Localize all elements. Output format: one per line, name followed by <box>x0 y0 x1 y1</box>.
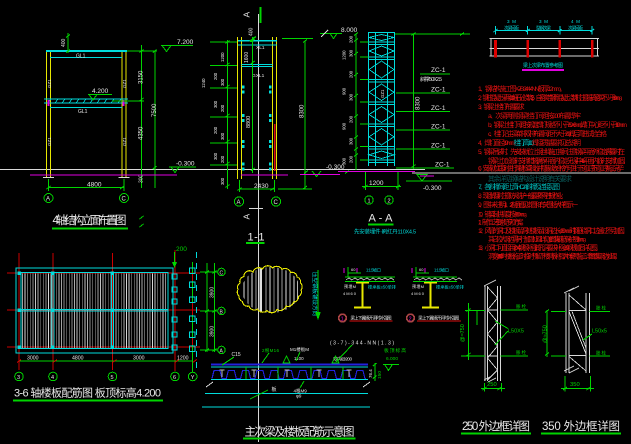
svg-text:300: 300 <box>349 137 354 145</box>
svg-text:200: 200 <box>220 104 225 112</box>
svg-text:4800: 4800 <box>87 182 102 189</box>
svg-text:7500: 7500 <box>152 103 158 117</box>
svg-text:GZ1: GZ1 <box>122 137 127 146</box>
svg-text:ZC-1: ZC-1 <box>431 143 446 150</box>
svg-text:4800: 4800 <box>72 356 84 362</box>
svg-text:8800: 8800 <box>246 116 252 128</box>
svg-text:9、图中未注明1-1、2-2剖面图,见本图和有关图纸大样图示: 9、图中未注明1-1、2-2剖面图,见本图和有关图纸大样图示一 <box>478 200 578 209</box>
svg-text:1、钢结构施工图X-7B-344-4NN,板厚12mm。: 1、钢结构施工图X-7B-344-4NN,板厚12mm。 <box>478 84 566 93</box>
svg-text:预埋M: 预埋M <box>344 283 356 289</box>
svg-text:2430: 2430 <box>254 183 269 190</box>
svg-text:350 外边框详图: 350 外边框详图 <box>542 419 620 433</box>
svg-text:6.000: 6.000 <box>386 356 398 362</box>
svg-text:A: A <box>46 197 50 203</box>
svg-text:GZ1: GZ1 <box>122 79 127 88</box>
svg-text:a、次梁两侧 钢梁栓钉间距按200布置焊牢: a、次梁两侧 钢梁栓钉间距按200布置焊牢 <box>488 111 581 120</box>
svg-text:4: 4 <box>51 375 54 381</box>
svg-text:300: 300 <box>220 78 225 86</box>
svg-text:次梁间距: 次梁间距 <box>568 24 583 31</box>
svg-text:2: 2 <box>388 199 391 205</box>
svg-text:400: 400 <box>249 27 255 36</box>
svg-text:300: 300 <box>213 152 218 160</box>
svg-text:φ9: φ9 <box>296 394 302 399</box>
svg-text:梁上次梁布置参考图: 梁上次梁布置参考图 <box>523 62 563 69</box>
svg-text:钢梁上加设临时支撑措施,确保平面内稳定无误,并4-4.5平面: 钢梁上加设临时支撑措施,确保平面内稳定无误,并4-4.5平面内临时支撑加固, <box>488 156 626 165</box>
svg-text:200: 200 <box>349 35 354 43</box>
svg-text:300: 300 <box>349 49 354 57</box>
svg-text:200: 200 <box>213 126 218 134</box>
svg-text:A: A <box>237 200 241 206</box>
svg-text:Y: Y <box>191 375 195 381</box>
svg-text:60: 60 <box>419 267 424 272</box>
svg-text:1:1.5坡口: 1:1.5坡口 <box>366 267 381 274</box>
svg-text:7、各斜撑间距上高HC2A,斜撑及连接见图: 7、各斜撑间距上高HC2A,斜撑及连接见图 <box>478 182 560 191</box>
svg-text:1: 1 <box>368 199 371 205</box>
svg-text:梁上下翼缘开洞时补强图: 梁上下翼缘开洞时补强图 <box>351 315 393 322</box>
svg-text:C: C <box>122 197 127 203</box>
svg-text:3-6 轴楼板配筋图 板顶标高4.200: 3-6 轴楼板配筋图 板顶标高4.200 <box>14 386 161 400</box>
svg-text:A: A <box>242 12 252 18</box>
svg-text:60: 60 <box>351 267 356 272</box>
svg-text:2、钢柱混凝土采用C30细石砼浇筑25、自密实性 钢骨混凝土: 2、钢柱混凝土采用C30细石砼浇筑25、自密实性 钢骨混凝土浇筑时注意振捣密实不… <box>478 93 626 102</box>
svg-text:楼承板≥50单排: 楼承板≥50单排 <box>436 284 465 291</box>
svg-text:3: 3 <box>17 375 20 381</box>
svg-text:12、风管的洞口及楼板留洞处楼板留设洞边长<250mm时 钢: 12、风管的洞口及楼板留洞处楼板留设洞边长<250mm时 钢筋绕洞口边通过不另加… <box>478 226 625 235</box>
svg-text:200: 200 <box>349 70 354 78</box>
svg-text:@≈750: @≈750 <box>543 325 549 343</box>
svg-text:1240: 1240 <box>201 78 206 88</box>
svg-text:300: 300 <box>139 174 145 183</box>
svg-text:ZC-1: ZC-1 <box>431 67 446 74</box>
svg-text:150: 150 <box>377 371 383 379</box>
svg-text:4.200: 4.200 <box>92 88 109 95</box>
svg-text:梁上下翼缘开洞时补强图: 梁上下翼缘开洞时补强图 <box>418 315 460 322</box>
svg-text:胀栓: 胀栓 <box>596 350 607 357</box>
svg-text:1-1: 1-1 <box>248 232 265 244</box>
svg-text:先安装埋件·刷红丹110X4.5: 先安装埋件·刷红丹110X4.5 <box>354 228 416 236</box>
svg-text:板: 板 <box>272 386 277 393</box>
svg-text:3、钢梁上栓钉布置要求:: 3、钢梁上栓钉布置要求: <box>478 102 525 111</box>
svg-text:b、钢梁上栓钉间距按规定 焊钉规格不小于750X6mm,焊钉: b、钢梁上栓钉间距按规定 焊钉规格不小于750X6mm,焊钉中心距不小于110m… <box>488 120 627 129</box>
svg-text:胀栓: 胀栓 <box>516 349 527 356</box>
svg-text:ZC-1: ZC-1 <box>431 87 446 94</box>
svg-text:3150: 3150 <box>139 70 145 84</box>
svg-text:4350: 4350 <box>139 126 145 140</box>
svg-text:GZ1: GZ1 <box>47 79 52 88</box>
svg-text:5: 5 <box>111 375 114 381</box>
svg-text:1600: 1600 <box>244 52 250 63</box>
svg-text:13、小洞口可直接用(20X4)钢板补强,其孔洞要求补强25: 13、小洞口可直接用(20X4)钢板补强,其孔洞要求补强250钢板 加固详见图。 <box>478 243 602 252</box>
svg-text:1200: 1200 <box>342 50 347 60</box>
svg-text:200: 200 <box>176 246 187 253</box>
svg-text:其它较大洞边需另行加固处理详见12.5图集,钢筋保护层1.0: 其它较大洞边需另行加固处理详见12.5图集,钢筋保护层1.0mm。 <box>488 235 590 244</box>
svg-text:300: 300 <box>213 100 218 108</box>
svg-text:洞宽<25000时楼板施工时临时预留下楼洞板补强大样,参照施: 洞宽<25000时楼板施工时临时预留下楼洞板补强大样,参照施工详图 图集洞边处理… <box>488 252 621 261</box>
svg-text:4M60: 4M60 <box>343 291 357 296</box>
svg-text:1: 1 <box>341 317 344 323</box>
svg-text:5、钢梁吊装时、先安装就位上钢丝绳 施工期间注意钢梁平面外稳: 5、钢梁吊装时、先安装就位上钢丝绳 施工期间注意钢梁平面外稳定,需要时在 <box>478 147 625 156</box>
svg-text:胀栓: 胀栓 <box>516 303 527 310</box>
svg-text:C15: C15 <box>232 352 241 358</box>
svg-text:900: 900 <box>342 122 347 130</box>
svg-text:L50X5: L50X5 <box>508 329 524 335</box>
svg-text:1:1.5坡口: 1:1.5坡口 <box>434 267 449 274</box>
svg-text:GXL1: GXL1 <box>252 73 265 79</box>
svg-text:7.200: 7.200 <box>177 39 194 46</box>
svg-text:C: C <box>220 271 224 277</box>
svg-text:c、栓钉沿主梁单排 双排布置 间距不大于200,焊后弯曲试验: c、栓钉沿主梁单排 双排布置 间距不大于200,焊后弯曲试验合格 <box>488 129 607 138</box>
svg-text:楼承板≥50单排: 楼承板≥50单排 <box>368 284 397 291</box>
svg-text:ZC-1: ZC-1 <box>431 105 446 112</box>
svg-text:其余详见钢结构设计说明有关要求: 其余详见钢结构设计说明有关要求 <box>488 174 572 183</box>
svg-text:3000: 3000 <box>27 356 39 362</box>
svg-text:2: 2 <box>409 317 412 323</box>
svg-text:6: 6 <box>173 375 176 381</box>
svg-text:次梁间距: 次梁间距 <box>504 24 519 31</box>
svg-text:GL1: GL1 <box>78 109 88 115</box>
svg-text:ZC-1: ZC-1 <box>431 124 446 131</box>
svg-text:250 外边框详图: 250 外边框详图 <box>462 419 530 433</box>
svg-text:350: 350 <box>570 382 580 388</box>
svg-text:250: 250 <box>487 382 497 388</box>
svg-text:11、制作工艺要求见专项方案。: 11、制作工艺要求见专项方案。 <box>478 218 527 227</box>
svg-text:900: 900 <box>342 87 347 95</box>
svg-text:8、现场焊接时注意防火防护一般要求,不得违规作业。: 8、现场焊接时注意防火防护一般要求,不得违规作业。 <box>478 191 567 200</box>
svg-text:-0.300: -0.300 <box>176 161 195 168</box>
svg-text:400: 400 <box>61 38 67 47</box>
svg-text:L50x5: L50x5 <box>592 329 607 335</box>
svg-text:A: A <box>242 214 252 220</box>
svg-text:8300: 8300 <box>300 104 306 118</box>
svg-text:10、钢梁起拱高度按+150mm。: 10、钢梁起拱高度按+150mm。 <box>478 210 531 219</box>
svg-text:1100: 1100 <box>294 356 304 361</box>
svg-text:200: 200 <box>220 155 225 163</box>
svg-text:斜撑50X2.5: 斜撑50X2.5 <box>420 75 442 83</box>
svg-text:GZ1: GZ1 <box>380 89 385 98</box>
svg-text:3M: 3M <box>507 19 516 24</box>
svg-text:300: 300 <box>220 177 225 185</box>
svg-text:200: 200 <box>213 72 218 80</box>
svg-text:型钢次梁: 型钢次梁 <box>536 24 551 31</box>
svg-text:300: 300 <box>349 93 354 101</box>
svg-text:1200: 1200 <box>177 356 189 362</box>
svg-text:6、安装就位后,及时进行焊缝检查验收并隐蔽验收合格方可进行下: 6、安装就位后,及时进行焊缝检查验收并隐蔽验收合格方可进行下道工序,下道工序施工… <box>478 164 624 173</box>
svg-text:4、焊钉直径19mm,栓钉高110,焊接质量要求见总说明: 4、焊钉直径19mm,栓钉高110,焊接质量要求见总说明 <box>478 138 581 147</box>
svg-text:3900: 3900 <box>210 287 216 298</box>
svg-text:3900: 3900 <box>210 326 216 337</box>
svg-text:A-A: A-A <box>369 213 394 225</box>
svg-text:主次梁及楼板配筋示意图: 主次梁及楼板配筋示意图 <box>245 425 355 439</box>
svg-text:-0.300: -0.300 <box>423 185 442 192</box>
svg-text:@≈750: @≈750 <box>460 324 466 342</box>
svg-text:4轴结构立面布置图: 4轴结构立面布置图 <box>53 213 127 227</box>
svg-text:4M60: 4M60 <box>411 291 425 296</box>
svg-text:1200: 1200 <box>369 180 384 187</box>
svg-text:3M: 3M <box>539 19 548 24</box>
svg-text:200: 200 <box>349 155 354 163</box>
svg-text:4M: 4M <box>571 19 580 24</box>
svg-text:预埋M: 预埋M <box>412 283 424 289</box>
svg-text:XL1: XL1 <box>256 45 265 51</box>
svg-text:3000: 3000 <box>133 356 145 362</box>
svg-text:GZ1: GZ1 <box>47 137 52 146</box>
svg-text:8.000: 8.000 <box>341 27 358 34</box>
svg-text:76.4: 76.4 <box>368 369 373 378</box>
svg-text:300: 300 <box>220 132 225 140</box>
svg-text:C: C <box>274 200 279 206</box>
svg-text:200: 200 <box>349 115 354 123</box>
svg-text:-0.300: -0.300 <box>326 164 345 171</box>
svg-text:2根M16: 2根M16 <box>262 347 279 354</box>
svg-text:GL1: GL1 <box>76 54 86 60</box>
svg-text:8300: 8300 <box>416 96 422 110</box>
svg-text:胀栓: 胀栓 <box>596 305 607 312</box>
svg-text:板顶标高: 板顶标高 <box>384 347 406 354</box>
svg-text:1200: 1200 <box>220 52 225 62</box>
